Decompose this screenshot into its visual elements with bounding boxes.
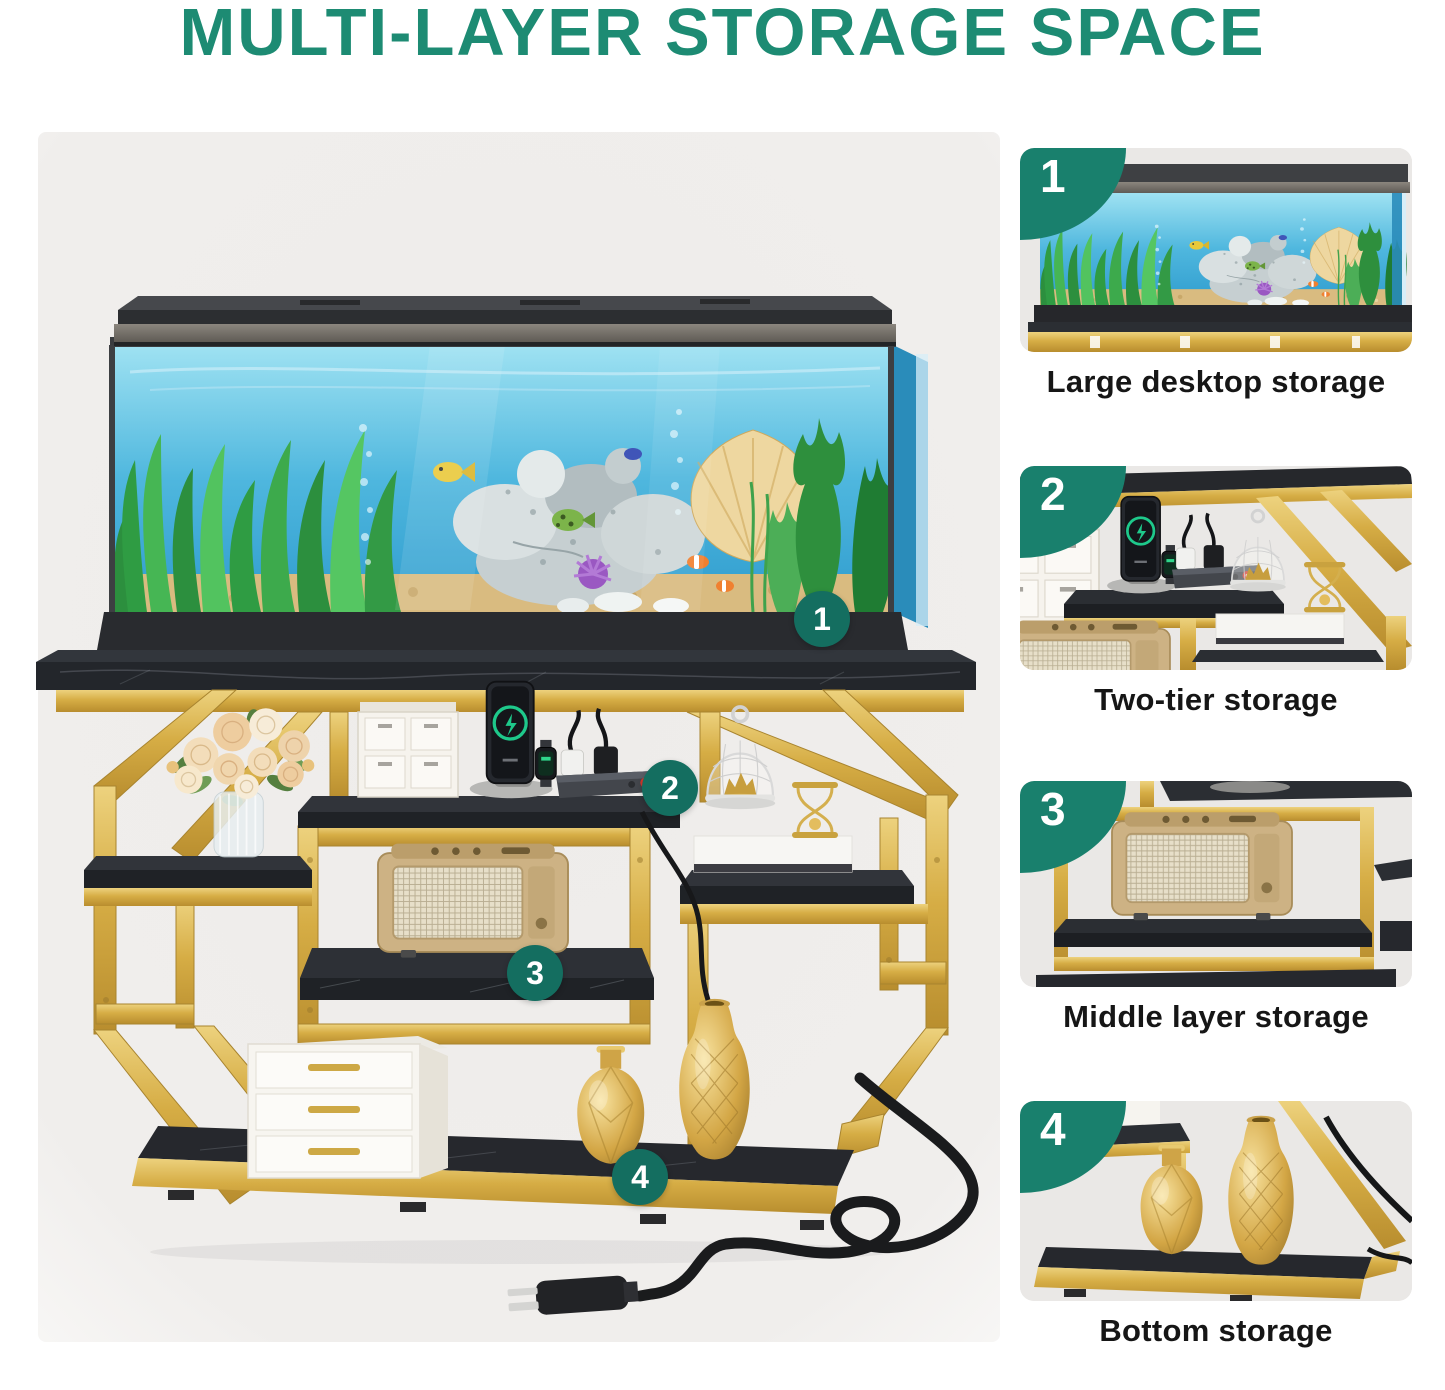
badge-number: 2 <box>1020 466 1126 518</box>
callout-number: 1 <box>813 601 831 638</box>
feature-card-two-tier: 2 Two-tier storage <box>1020 466 1412 718</box>
feature-card-middle: 3 Middle layer storage <box>1020 781 1412 1035</box>
feature-caption: Large desktop storage <box>1020 364 1412 400</box>
drawer-cabinet <box>248 1036 448 1178</box>
feature-image-bottom: 4 <box>1020 1101 1412 1301</box>
feature-caption: Middle layer storage <box>1020 999 1412 1035</box>
feature-card-desktop: 1 Large desktop storage <box>1020 148 1412 400</box>
badge-number: 1 <box>1020 148 1126 200</box>
feature-image-two-tier: 2 <box>1020 466 1412 670</box>
mini-drawer-unit <box>358 702 458 797</box>
feature-image-middle: 3 <box>1020 781 1412 987</box>
callout-number: 2 <box>661 770 679 807</box>
feature-caption: Bottom storage <box>1020 1313 1412 1349</box>
callout-badge-4: 4 <box>612 1149 668 1205</box>
retro-radio <box>378 844 568 958</box>
callout-number: 3 <box>526 955 544 992</box>
badge-number: 4 <box>1020 1101 1126 1153</box>
callout-badge-2: 2 <box>642 760 698 816</box>
tank-lid <box>114 296 896 346</box>
feature-image-desktop: 1 <box>1020 148 1412 352</box>
badge-number: 3 <box>1020 781 1126 833</box>
tank-base <box>97 612 908 650</box>
feature-card-bottom: 4 Bottom storage <box>1020 1101 1412 1349</box>
callout-number: 4 <box>631 1159 649 1196</box>
main-product-photo: 1 2 3 4 <box>0 0 1010 1390</box>
callout-badge-1: 1 <box>794 591 850 647</box>
feature-caption: Two-tier storage <box>1020 682 1412 718</box>
callout-badge-3: 3 <box>507 945 563 1001</box>
